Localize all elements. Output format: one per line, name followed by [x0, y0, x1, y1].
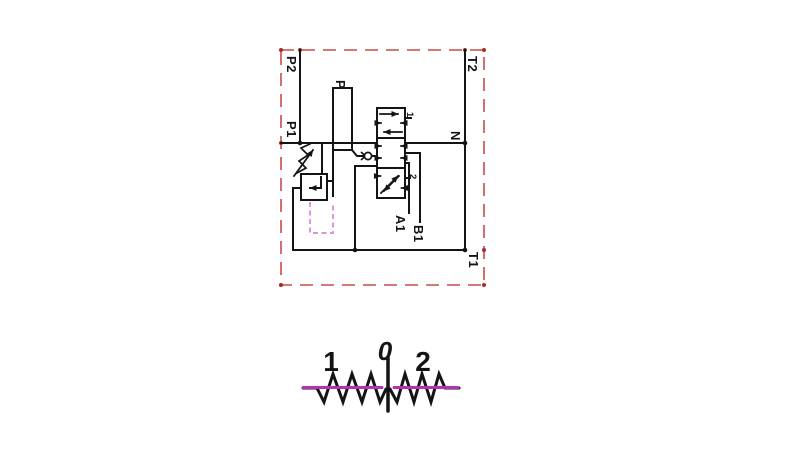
lever-position-0-label: 0	[378, 336, 393, 366]
spool-position-label-2: 2	[407, 174, 418, 179]
port-labels: P2 T2 P1 N T1 P A1 B1 1 2	[284, 56, 481, 268]
valve-position-1-symbols	[377, 114, 405, 132]
check-valve-ball-icon	[364, 152, 371, 159]
valve-position-0-symbols	[377, 146, 405, 158]
pilot-line-dashed	[310, 202, 333, 233]
port-label-a1: A1	[393, 215, 408, 233]
lever-control-diagram: 1 0 2	[303, 336, 459, 411]
port-label-t2: T2	[465, 56, 480, 72]
spool-position-label-1: 1	[404, 112, 415, 118]
port-label-p2: P2	[284, 56, 299, 73]
directional-control-valve	[377, 108, 405, 198]
inlet-section-p	[333, 88, 352, 150]
valve-position-dividers	[377, 138, 405, 168]
port-label-b1: B1	[411, 225, 426, 243]
port-label-p1: P1	[284, 121, 299, 138]
port-label-t1: T1	[466, 252, 481, 268]
hydraulic-schematic-page: P2 T2 P1 N T1 P A1 B1 1 2 1 0 2	[0, 0, 800, 450]
inlet-channel-rect	[333, 88, 352, 150]
port-label-n: N	[448, 131, 463, 141]
relief-valve-arrow	[310, 177, 321, 188]
circuit-junction-dots	[298, 141, 468, 253]
circuit-lines	[281, 50, 467, 252]
hydraulic-schematic-canvas: P2 T2 P1 N T1 P A1 B1 1 2 1 0 2	[0, 0, 800, 450]
lever-position-1-label: 1	[323, 346, 339, 377]
relief-adjust-arrow	[294, 150, 313, 176]
port-label-p: P	[333, 80, 348, 89]
valve-position-2-symbols	[377, 176, 405, 193]
valve-return-line	[355, 166, 377, 250]
